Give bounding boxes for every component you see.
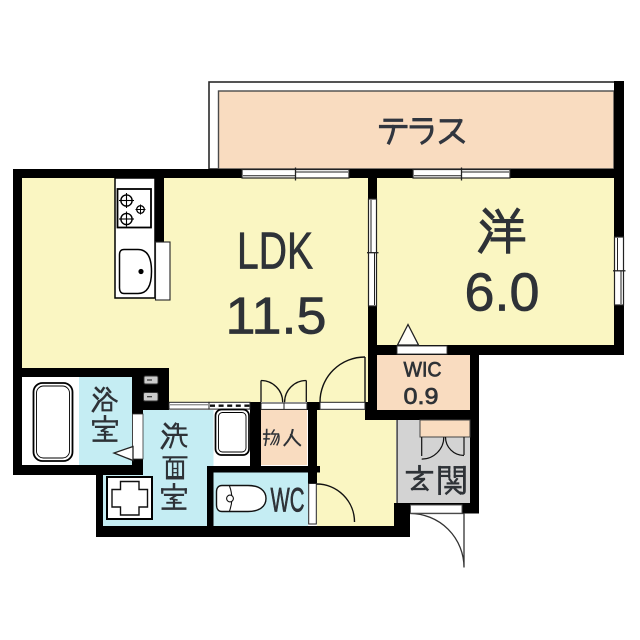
svg-text:LDK: LDK bbox=[237, 223, 313, 281]
svg-text:WC: WC bbox=[271, 482, 305, 520]
svg-text:WIC: WIC bbox=[404, 359, 442, 382]
svg-text:11.5: 11.5 bbox=[226, 288, 327, 346]
svg-text:0.9: 0.9 bbox=[404, 383, 439, 409]
svg-text:6.0: 6.0 bbox=[465, 263, 540, 323]
